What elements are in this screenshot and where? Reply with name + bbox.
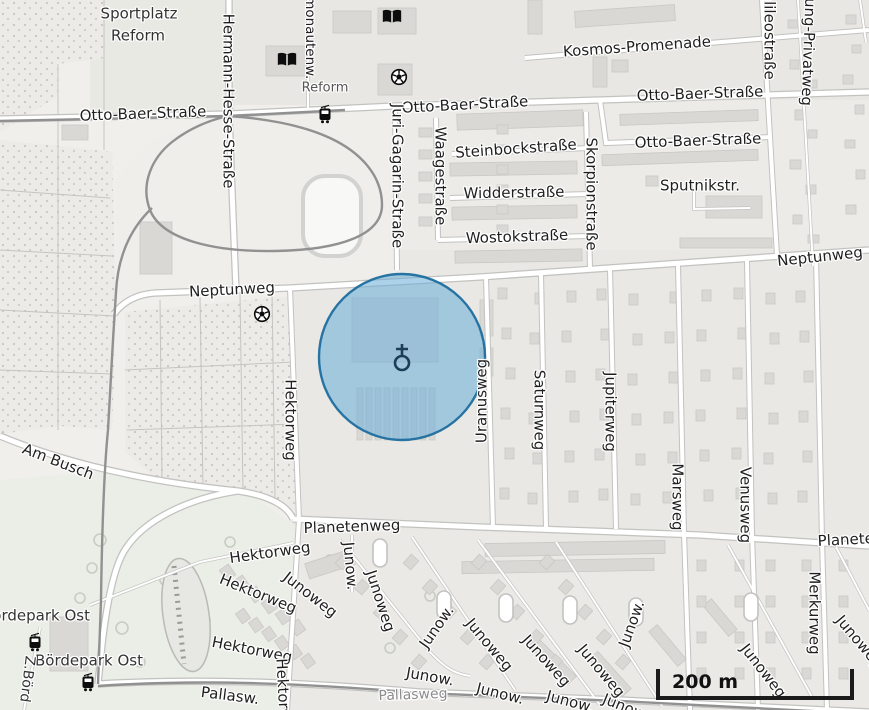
map-base-layer — [0, 0, 869, 710]
scale-bar: 200 m — [656, 669, 854, 700]
stadium-track — [303, 176, 361, 256]
scale-bar-label: 200 m — [672, 671, 738, 693]
map-canvas[interactable]: SportplatzReformOtto-Baer-StraßeHermann-… — [0, 0, 869, 710]
